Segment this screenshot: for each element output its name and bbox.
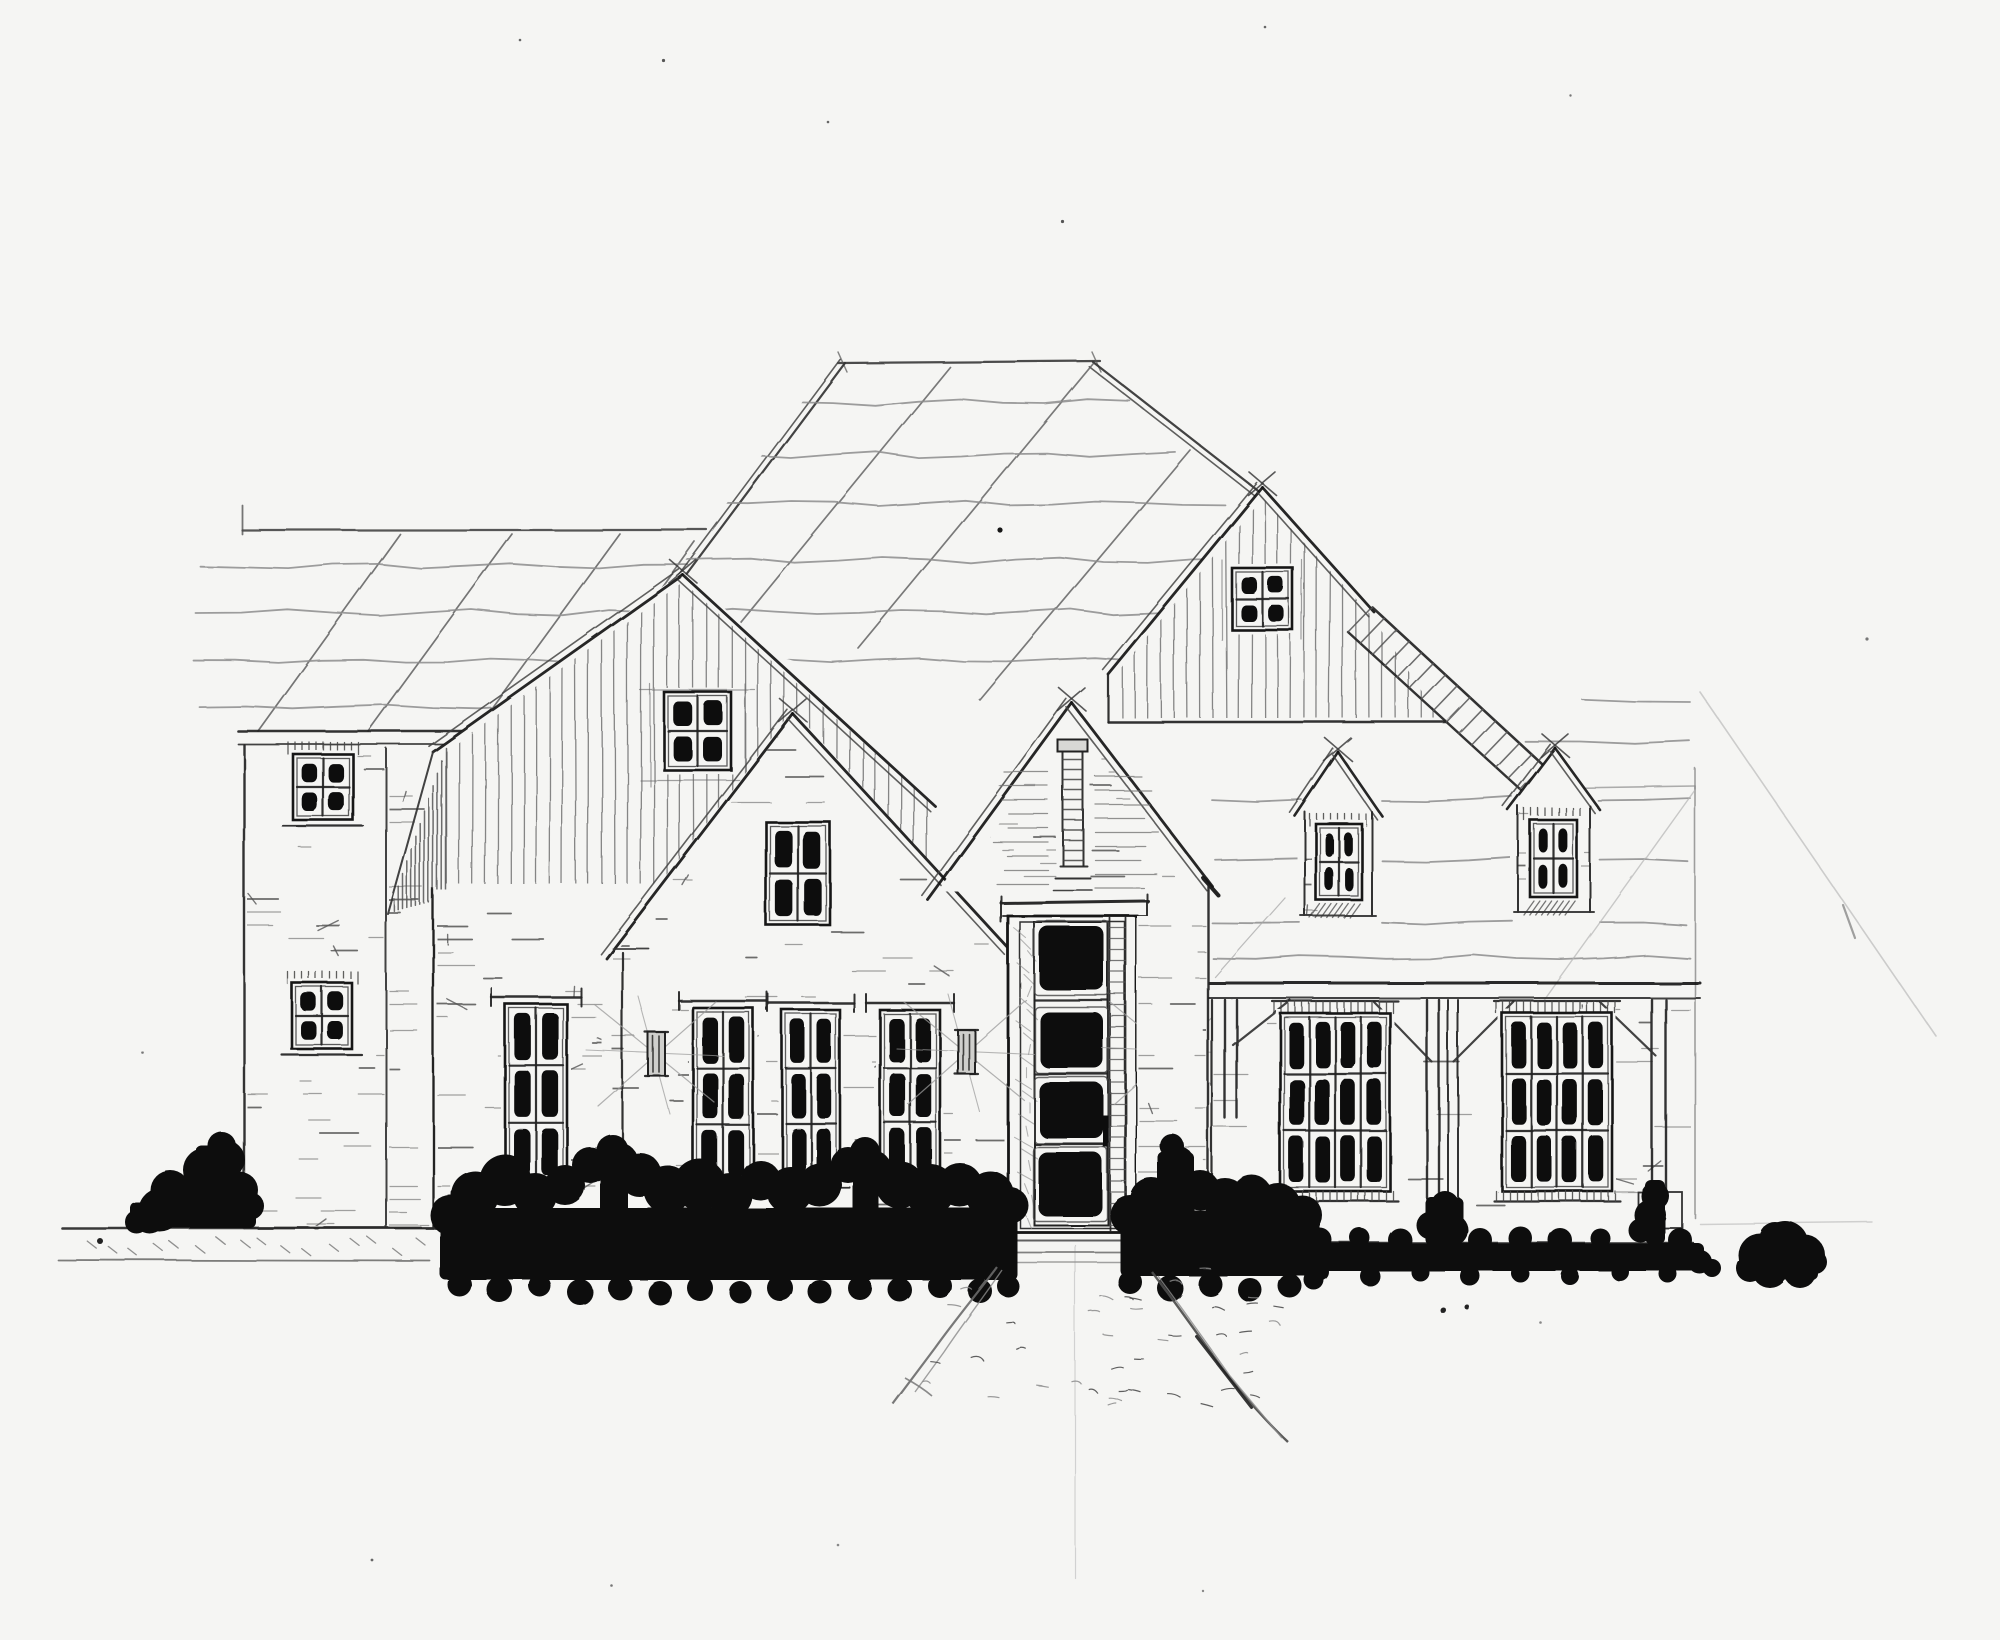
door-panel-4 [1033,1147,1107,1221]
left-gable-window [660,688,735,774]
door-panel-1 [1034,921,1109,995]
dormer-2-window [1524,816,1581,915]
chimney-vent [1053,740,1092,890]
entry-door [1008,916,1137,1232]
large-window-left [1272,1001,1398,1201]
left-tower [244,742,433,1229]
large-window-right [1494,1001,1620,1201]
paper-sheet: Hand-drawn front elevation sketch of a f… [0,0,2000,1640]
right-gable-window [1228,564,1297,634]
center-gable-window [762,818,834,929]
elevation-sketch: Hand-drawn front elevation sketch of a f… [0,0,2000,1640]
door-panel-2 [1035,1007,1108,1073]
dormer-1-window [1310,820,1366,918]
tower-window-lower [282,979,362,1055]
door-panel-3 [1034,1077,1108,1143]
tower-window-upper [283,750,363,826]
